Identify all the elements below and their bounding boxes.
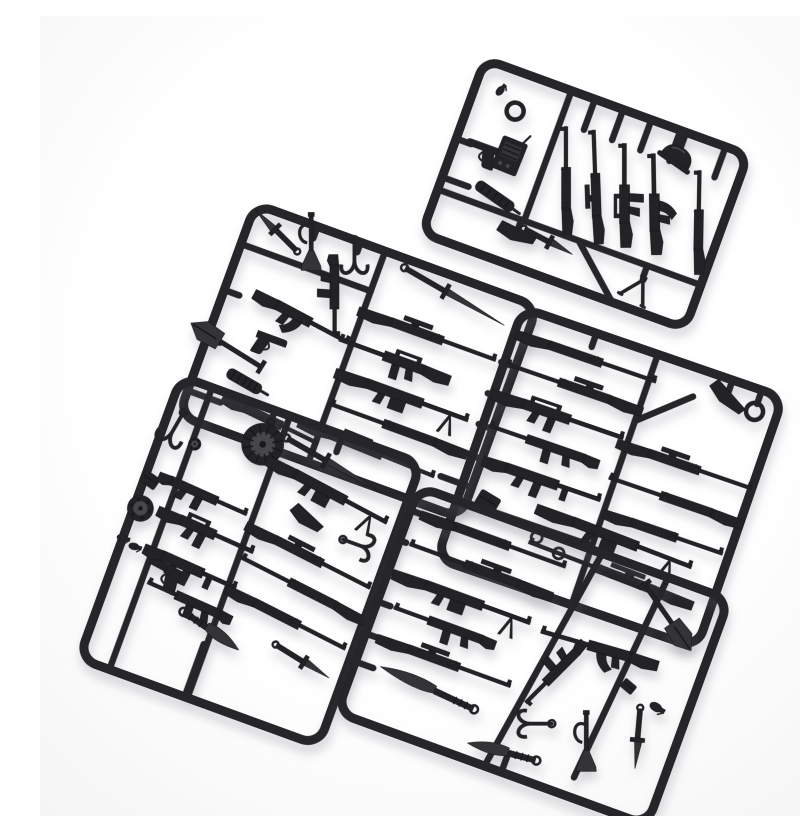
item-bipod: [618, 269, 657, 307]
item-bolt-rifle: [561, 127, 574, 235]
sprue-bottom-left: [73, 374, 423, 746]
item-knife: [269, 637, 333, 684]
item-assault-rifle: [614, 143, 644, 247]
item-bolt-rifle: [692, 170, 706, 274]
sprue-top: [422, 59, 749, 329]
item-ak-rifle: [648, 153, 678, 254]
item-grenade: [128, 542, 143, 553]
item-ring: [744, 401, 766, 423]
item-bolt-rifle: [514, 328, 658, 388]
runner-bar: [612, 110, 623, 140]
product-photo: [40, 16, 800, 816]
item-hook: [335, 526, 376, 562]
runner-bar: [715, 147, 726, 177]
item-bolt-rifle: [223, 583, 348, 655]
runner-bar: [643, 266, 647, 277]
item-knife: [628, 704, 648, 769]
item-grenade: [648, 700, 667, 717]
item-grenade: [494, 82, 509, 97]
item-scoped-rifle: [583, 130, 605, 245]
item-bolt-rifle: [238, 553, 368, 627]
item-radio: [491, 127, 531, 177]
item-ring: [504, 100, 526, 122]
item-hook: [518, 710, 555, 736]
sprue-canvas: [40, 16, 800, 816]
runner-bar: [584, 100, 595, 130]
runner-bar: [185, 644, 204, 697]
item-stock-part: [289, 501, 323, 537]
runner-bar: [640, 120, 651, 150]
item-pistol: [250, 330, 287, 361]
